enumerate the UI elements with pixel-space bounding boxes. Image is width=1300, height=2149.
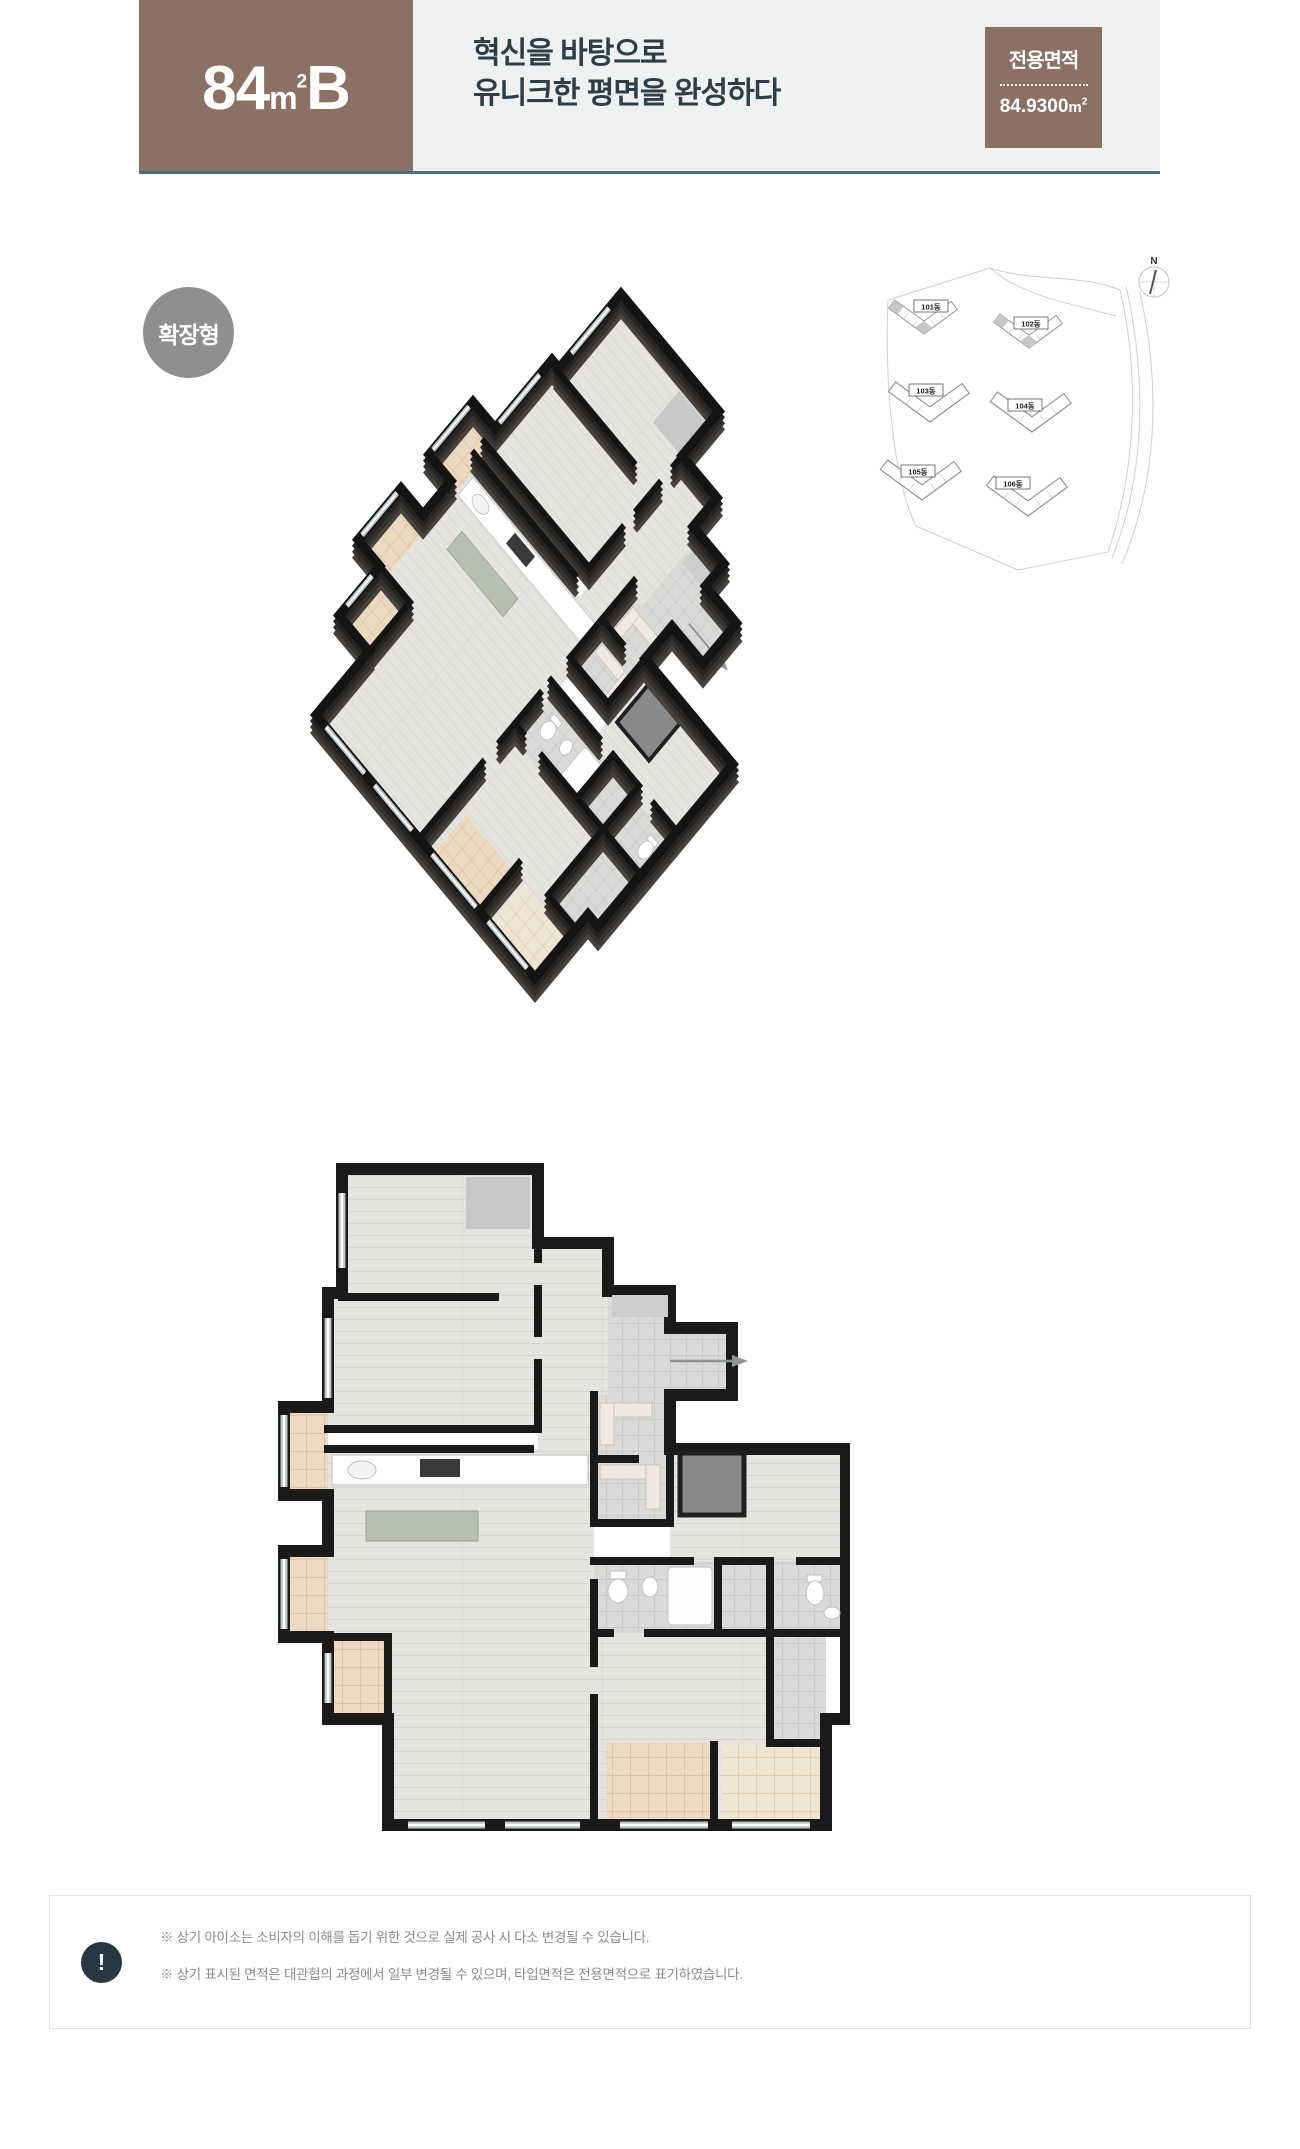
building-label: 103동 [916,387,936,396]
disclaimer-box: ! ※ 상기 아이소는 소비자의 이해를 돕기 위한 것으로 실제 공사 시 다… [49,1895,1251,2029]
top-view-floor-plan-svg [270,1163,850,1839]
building-101: 101동 [889,300,958,334]
building-105: 105동 [880,460,961,500]
floorplan-page: 혁신을 바탕으로 유니크한 평면을 완성하다 전용면적 84.9300m2 84… [0,0,1300,2149]
building-label: 105동 [908,468,928,477]
disclaimer-line-1: ※ 상기 아이소는 소비자의 이해를 돕기 위한 것으로 실제 공사 시 다소 … [160,1929,743,1947]
building-104: 104동 [990,392,1071,432]
disclaimer-text: ※ 상기 아이소는 소비자의 이해를 돕기 위한 것으로 실제 공사 시 다소 … [160,1929,743,2003]
unit-type-box: 84m2B [139,0,413,171]
area-value: 84.9300m2 [985,96,1102,118]
header-underline [139,171,1160,174]
isometric-floor-plan-svg [238,243,902,1049]
compass-n-label: N [1150,256,1157,267]
building-103: 103동 [888,382,969,422]
compass: N [1139,256,1169,297]
building-label: 102동 [1021,320,1041,329]
dotted-divider [1000,84,1088,86]
expansion-type-badge: 확장형 [143,287,234,378]
header-band: 혁신을 바탕으로 유니크한 평면을 완성하다 전용면적 84.9300m2 [413,0,1160,171]
site-plan: N 101동 102동 103동 104동 [872,256,1196,582]
unit-type-label: 84m2B [202,52,350,120]
building-label: 106동 [1003,480,1023,489]
top-view-floor-plan [270,1163,850,1839]
title-line2: 유니크한 평면을 완성하다 [473,74,780,114]
exclusive-area-box: 전용면적 84.9300m2 [985,27,1102,148]
isometric-floor-plan [238,243,902,1049]
building-label: 101동 [921,303,941,312]
building-label: 104동 [1015,402,1035,411]
exclamation-icon: ! [81,1942,122,1983]
building-106: 106동 [986,476,1067,516]
disclaimer-line-2: ※ 상기 표시된 면적은 대관협의 과정에서 일부 변경될 수 있으며, 타입면… [160,1966,743,1984]
area-label: 전용면적 [985,44,1102,73]
site-plan-svg: N 101동 102동 103동 104동 [872,256,1196,582]
page-title: 혁신을 바탕으로 유니크한 평면을 완성하다 [473,34,780,114]
title-line1: 혁신을 바탕으로 [473,34,780,74]
building-102: 102동 [994,314,1063,348]
